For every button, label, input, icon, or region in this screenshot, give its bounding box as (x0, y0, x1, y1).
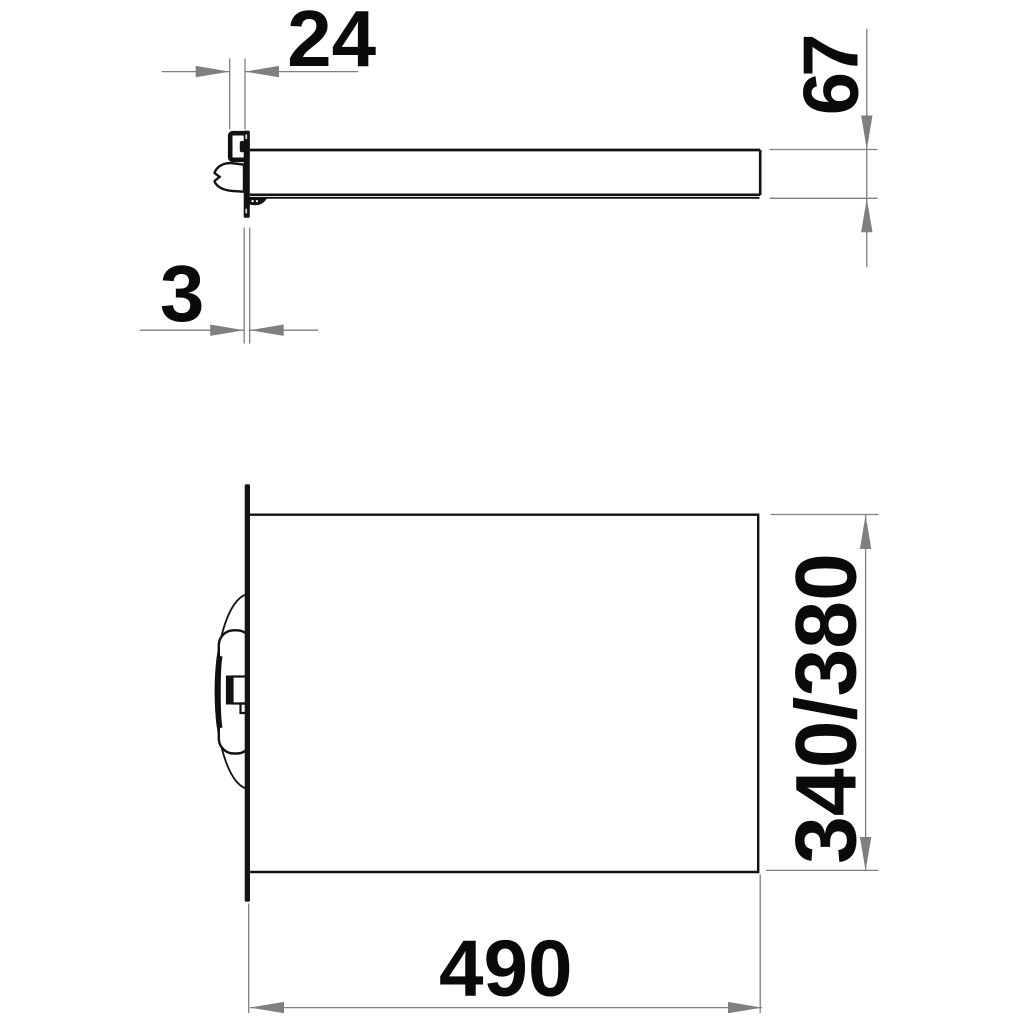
svg-text:3: 3 (160, 249, 205, 338)
svg-text:24: 24 (287, 0, 376, 83)
svg-text:490: 490 (439, 924, 572, 1013)
svg-text:67: 67 (786, 37, 874, 115)
svg-text:340/380: 340/380 (779, 553, 875, 864)
